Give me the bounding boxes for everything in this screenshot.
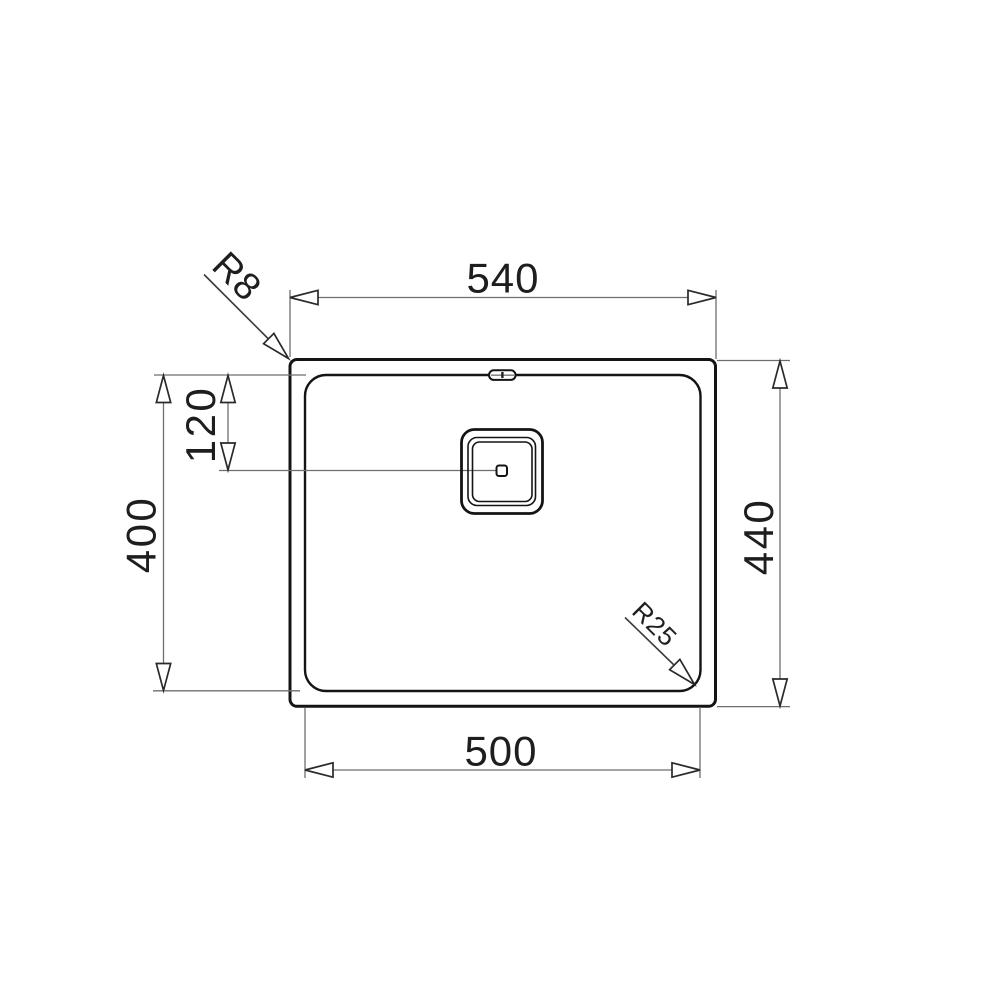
- svg-text:500: 500: [464, 728, 537, 775]
- svg-text:540: 540: [466, 255, 539, 302]
- svg-text:400: 400: [118, 496, 165, 574]
- svg-text:120: 120: [177, 386, 224, 464]
- svg-text:440: 440: [735, 498, 782, 576]
